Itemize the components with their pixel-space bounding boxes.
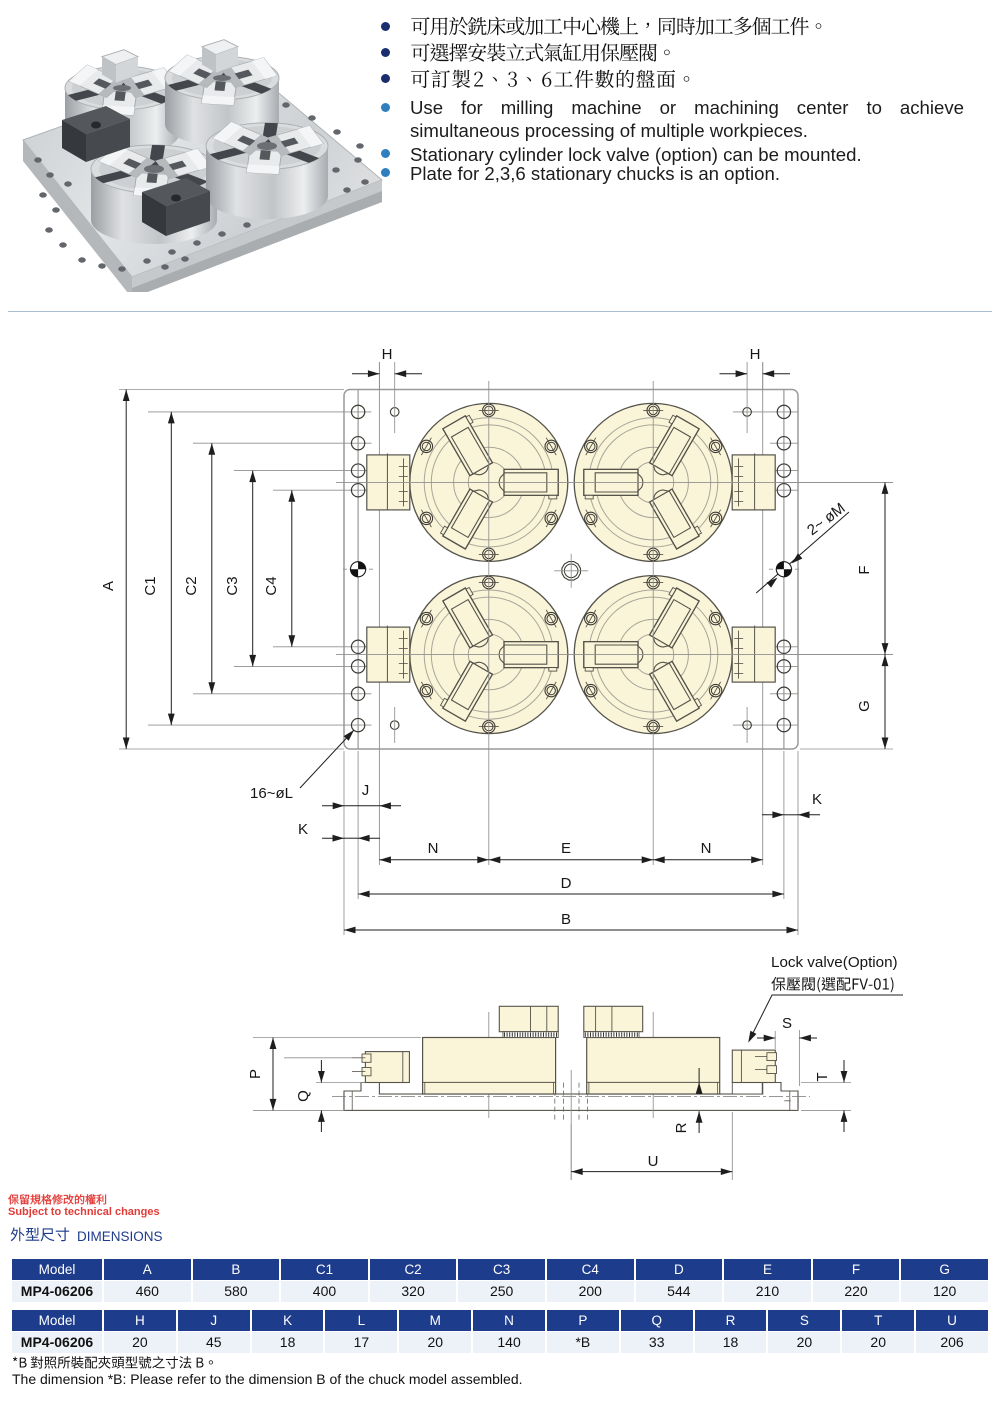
svg-text:J: J xyxy=(362,782,370,799)
svg-text:Lock valve(Option): Lock valve(Option) xyxy=(771,954,898,971)
svg-text:E: E xyxy=(561,840,571,857)
svg-text:C4: C4 xyxy=(263,576,280,595)
svg-text:C2: C2 xyxy=(183,576,200,595)
svg-text:U: U xyxy=(648,1153,659,1170)
svg-text:N: N xyxy=(701,840,712,857)
svg-text:2~ øM: 2~ øM xyxy=(804,500,849,539)
svg-text:H: H xyxy=(750,346,761,363)
svg-text:H: H xyxy=(382,346,393,363)
svg-text:K: K xyxy=(812,791,822,808)
svg-text:G: G xyxy=(856,700,873,712)
svg-text:K: K xyxy=(298,821,308,838)
svg-text:T: T xyxy=(814,1072,831,1081)
svg-text:S: S xyxy=(782,1015,792,1032)
svg-text:Q: Q xyxy=(295,1090,312,1102)
svg-text:16~øL: 16~øL xyxy=(250,785,293,802)
svg-text:N: N xyxy=(428,840,439,857)
svg-text:C3: C3 xyxy=(224,576,241,595)
svg-text:B: B xyxy=(561,911,571,928)
svg-text:R: R xyxy=(673,1122,690,1133)
svg-text:F: F xyxy=(856,565,873,574)
svg-text:A: A xyxy=(100,581,117,591)
svg-text:C1: C1 xyxy=(142,576,159,595)
svg-text:D: D xyxy=(561,875,572,892)
svg-text:P: P xyxy=(247,1069,264,1079)
